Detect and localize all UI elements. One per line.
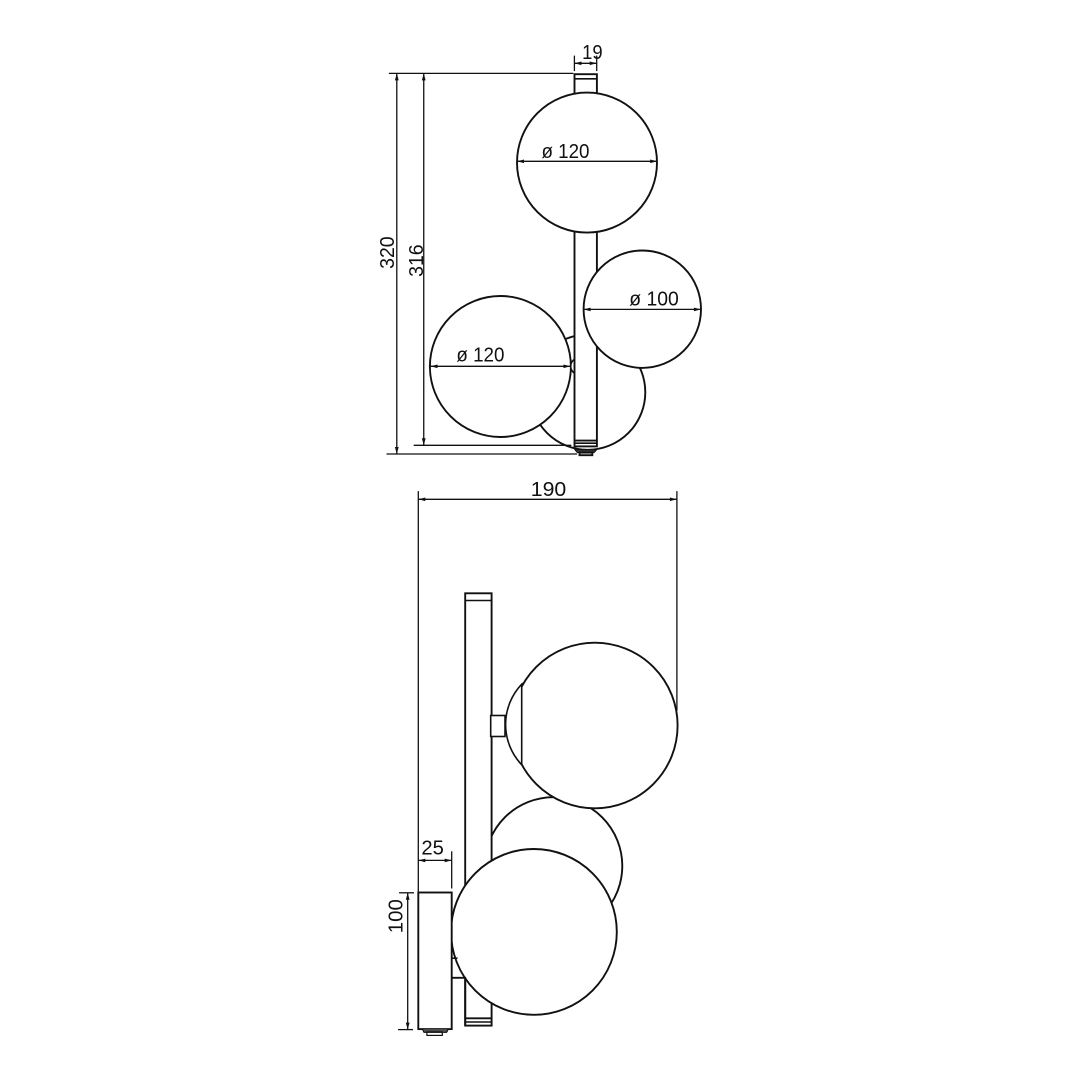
svg-text:25: 25 xyxy=(421,837,444,860)
svg-text:ø 120: ø 120 xyxy=(456,343,504,366)
svg-text:ø 100: ø 100 xyxy=(629,288,679,311)
svg-text:19: 19 xyxy=(582,41,603,64)
svg-text:316: 316 xyxy=(405,244,428,277)
svg-text:ø 120: ø 120 xyxy=(542,140,590,163)
svg-text:190: 190 xyxy=(531,478,567,501)
svg-text:320: 320 xyxy=(376,236,399,269)
svg-text:100: 100 xyxy=(384,899,407,933)
